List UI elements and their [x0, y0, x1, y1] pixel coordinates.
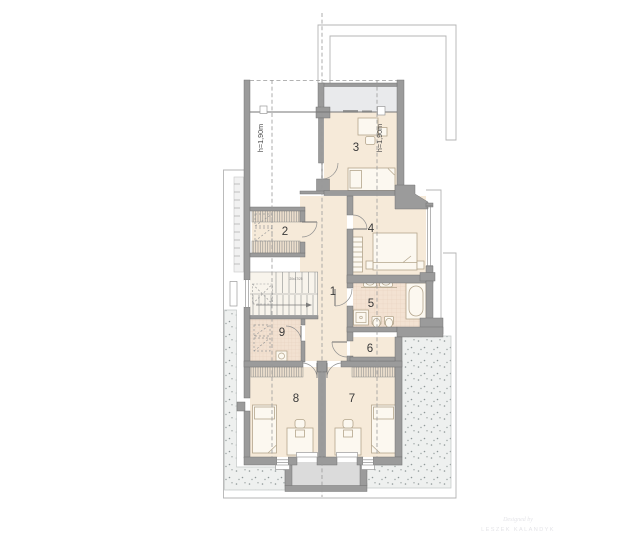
pillow: [350, 171, 362, 189]
balcony-door-sill: [297, 453, 318, 458]
pillow: [374, 407, 394, 419]
bathtub-basin: [409, 286, 423, 316]
room-label-5: 5: [368, 298, 374, 310]
balcony-door-sill: [337, 453, 358, 458]
bedroom-4-window: [426, 206, 433, 267]
height-marker: [378, 107, 386, 116]
room-label-1: 1: [330, 286, 336, 298]
watermark-line1: Designed by: [502, 517, 533, 523]
room-label-6: 6: [367, 343, 373, 355]
low-height-zone: [324, 86, 397, 112]
height-label-left: h=1,90m: [256, 124, 265, 152]
washer: [276, 351, 287, 361]
monitor: [344, 430, 353, 437]
pillow: [255, 407, 275, 419]
stair-dimension-note: 20x17/25: [289, 277, 302, 281]
monitor: [296, 430, 305, 437]
room-9-floor: [250, 319, 301, 361]
floor-plan-page: 20x17/25: [0, 0, 638, 556]
height-marker: [260, 106, 267, 114]
room-label-8: 8: [293, 393, 299, 405]
room-label-7: 7: [349, 393, 355, 405]
nightstand: [417, 261, 424, 269]
window-sill: [362, 465, 375, 470]
room-label-9: 9: [279, 327, 285, 339]
hall-floor-a: [300, 196, 347, 272]
window-sill: [230, 282, 237, 307]
watermark-line2: LESZEK KALANDYK: [481, 527, 555, 533]
height-label-right: h=1,90m: [375, 124, 384, 152]
window-sill: [276, 465, 290, 470]
bidet-bowl: [385, 318, 392, 327]
floor-plan-canvas: 20x17/25: [0, 0, 638, 556]
chair: [343, 420, 353, 429]
room-label-4: 4: [368, 223, 375, 235]
stairs-floor: [250, 272, 318, 315]
roof-strip: [234, 177, 244, 272]
room-label-2: 2: [282, 226, 288, 238]
chair: [366, 137, 376, 145]
bed-4: [373, 233, 417, 270]
hall-floor-c: [305, 319, 347, 361]
chair: [295, 420, 305, 429]
room-label-3: 3: [353, 142, 359, 154]
toilet-bowl: [373, 318, 380, 327]
nightstand: [366, 261, 373, 269]
